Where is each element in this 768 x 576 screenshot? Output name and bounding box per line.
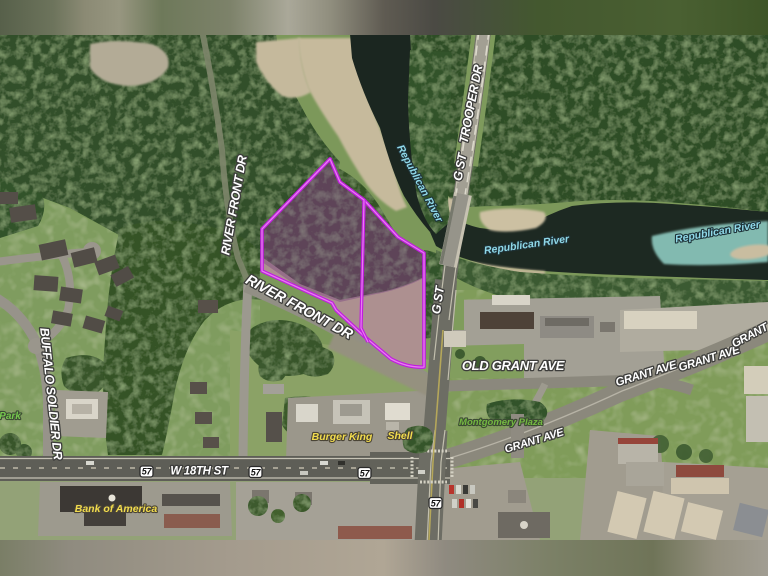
svg-text:57: 57 bbox=[251, 468, 262, 478]
svg-text:Burger King: Burger King bbox=[312, 431, 373, 443]
svg-text:Park: Park bbox=[0, 411, 21, 422]
svg-text:Bank of America: Bank of America bbox=[75, 503, 158, 515]
svg-text:57: 57 bbox=[360, 469, 371, 479]
svg-text:57: 57 bbox=[142, 467, 153, 477]
svg-text:W 18TH ST: W 18TH ST bbox=[170, 466, 229, 478]
svg-text:Shell: Shell bbox=[387, 430, 413, 442]
svg-text:OLD GRANT AVE: OLD GRANT AVE bbox=[462, 358, 565, 373]
svg-text:57: 57 bbox=[431, 499, 442, 509]
svg-text:Montgomery Plaza: Montgomery Plaza bbox=[459, 417, 543, 428]
